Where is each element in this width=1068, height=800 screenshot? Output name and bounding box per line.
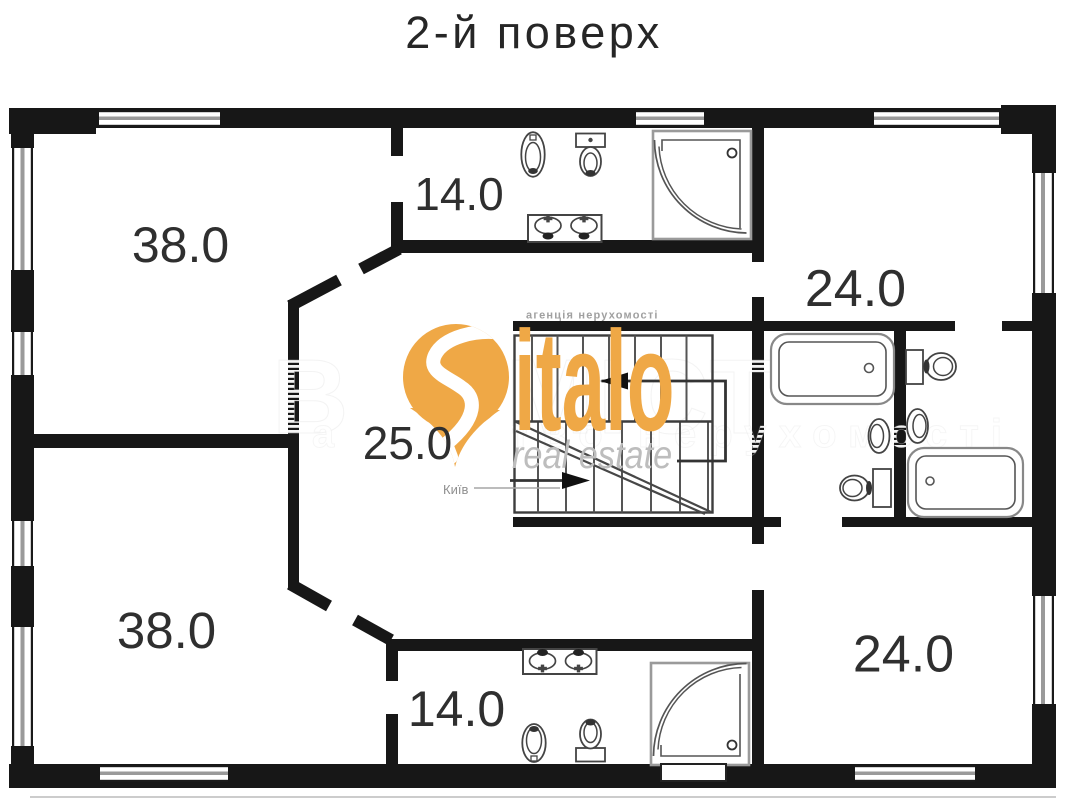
svg-text:2-й поверх: 2-й поверх [405, 7, 663, 58]
svg-text:38.0: 38.0 [132, 217, 229, 273]
svg-text:24.0: 24.0 [805, 260, 906, 318]
svg-text:25.0: 25.0 [363, 417, 453, 469]
svg-text:14.0: 14.0 [414, 168, 504, 220]
svg-text:real estate: real estate [512, 433, 672, 477]
svg-text:Київ: Київ [443, 482, 468, 497]
svg-text:38.0: 38.0 [117, 602, 216, 659]
svg-text:24.0: 24.0 [853, 626, 954, 684]
svg-text:14.0: 14.0 [408, 681, 505, 737]
